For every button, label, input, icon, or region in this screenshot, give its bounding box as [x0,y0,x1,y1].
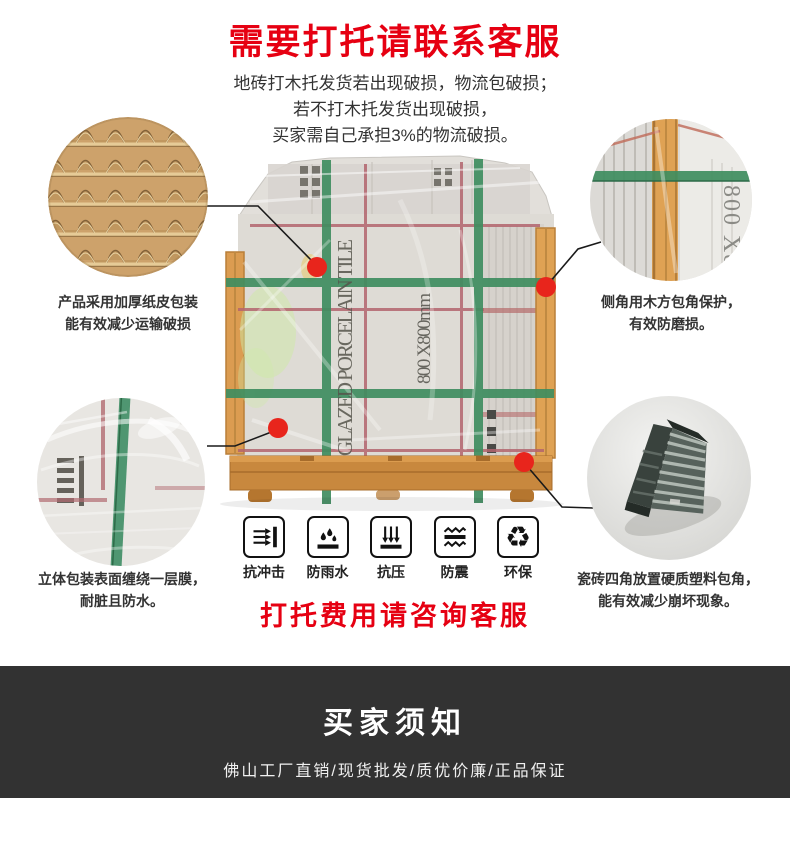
tile-box-edges [482,224,546,458]
callout-dot-bottom-right [514,452,534,472]
box-size-print: 800 X8 [718,185,744,268]
callout-dot-top-left [307,257,327,277]
rainproof-icon [307,516,349,558]
pressure-resistant-icon [370,516,412,558]
caption-cardboard: 产品采用加厚纸皮包装 能有效减少运输破损 [18,291,238,335]
feature-label: 环保 [504,562,532,582]
box-print-marks [300,166,452,198]
eco-friendly-icon: ♻ [497,516,539,558]
wood-corner-closeup: 800 X8 [590,119,752,281]
pallet-fee-notice: 打托费用请咨询客服 [0,594,790,633]
green-straps [226,159,554,504]
callout-dots [268,257,556,472]
feature-label: 抗压 [377,562,405,582]
recycle-glyph: ♻ [505,523,531,552]
callout-dot-top-right [536,277,556,297]
feature-eco: ♻ 环保 [489,516,547,582]
caption-line: 产品采用加厚纸皮包装 [18,291,238,313]
feature-pressure: 抗压 [362,516,420,582]
caption-line: 有效防磨损。 [561,313,781,335]
shockproof-icon [434,516,476,558]
caption-wood-corner: 侧角用木方包角保护， 有效防磨损。 [561,291,781,335]
callout-line-bottom-left [207,431,274,446]
wooden-pallet [220,456,564,511]
callout-lines [206,206,601,508]
callout-line-top-right [549,242,601,283]
stretch-film-closeup [37,398,205,566]
package-body: GLAZED PORCELAIN TILE 800 X800mm [220,156,564,511]
feature-rainproof: 防雨水 [299,516,357,582]
page-title: 需要打托请联系客服 [0,14,790,65]
wood-corner-posts [226,228,555,458]
feature-shockproof: 防震 [426,516,484,582]
feature-label: 抗冲击 [243,562,285,582]
caption-line: 瓷砖四角放置硬质塑料包角， [543,568,790,590]
callout-circle-corner-protector [587,396,751,560]
callout-circle-wood-corner: 800 X8 [590,119,752,281]
feature-label: 防雨水 [307,562,349,582]
callout-dot-bottom-left [268,418,288,438]
callout-line-bottom-right [527,466,593,508]
caption-line: 能有效减少运输破损 [18,313,238,335]
feature-impact: 抗冲击 [235,516,293,582]
product-packaging-promo-page: 需要打托请联系客服 地砖打木托发货若出现破损，物流包破损； 若不打木托发货出现破… [0,0,790,841]
callout-line-top-left [206,206,313,262]
package-size-text: 800 X800mm [414,292,435,384]
caption-line: 立体包装表面缠绕一层膜， [12,568,232,590]
red-straps [238,162,544,456]
film-sheen [240,168,545,452]
corrugated-cardboard-texture [48,117,208,277]
plastic-corner-protector [587,396,751,560]
feature-icons-row: 抗冲击 防雨水 [235,516,547,582]
intro-line-1: 地砖打木托发货若出现破损，物流包破损； [0,71,790,97]
caption-line: 侧角用木方包角保护， [561,291,781,313]
footer-title: 买家须知 [0,698,790,742]
callout-circle-film-wrap [37,398,205,566]
impact-resistant-icon [243,516,285,558]
feature-label: 防震 [441,562,469,582]
footer-subtitle: 佛山工厂直销/现货批发/质优价廉/正品保证 [0,757,790,781]
buyer-notice-footer: 买家须知 佛山工厂直销/现货批发/质优价廉/正品保证 [0,666,790,798]
callout-circle-cardboard [48,117,208,277]
package-side-text: GLAZED PORCELAIN TILE [333,238,357,456]
